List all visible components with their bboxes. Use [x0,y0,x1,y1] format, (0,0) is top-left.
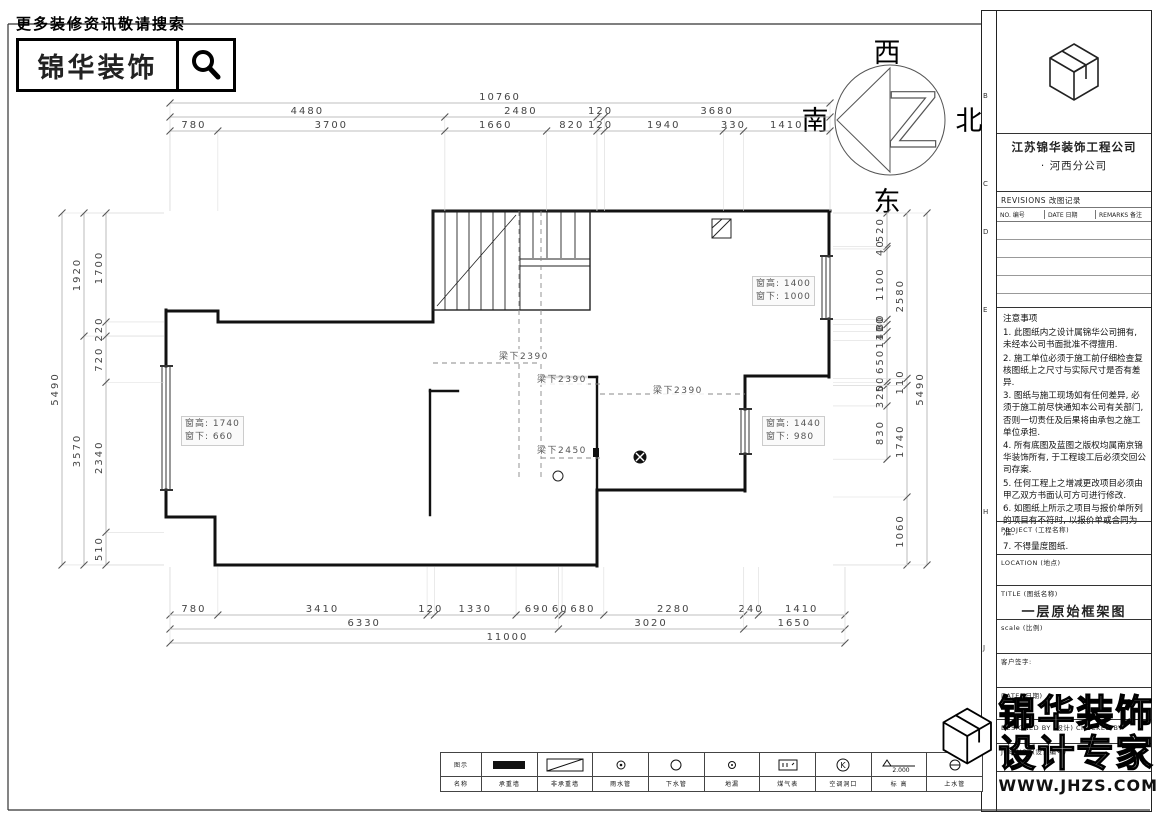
window-label: 窗高: 1740 窗下: 660 [181,416,244,446]
zone-letter: B [983,92,988,100]
dimension-label: 1740 [895,425,906,458]
dimension-label: 3020 [634,618,667,629]
dimension-label: 2580 [895,279,906,312]
window-height: 窗高: 1740 [185,418,240,431]
dimension-label: 140 [875,324,886,349]
dimension-label: 1100 [875,267,886,300]
dimension-label: 4480 [291,106,324,117]
zone-letter: H [983,508,988,516]
staircase [433,211,590,310]
dimension-label: 2280 [657,604,690,615]
dimension-label: 220 [94,316,105,341]
beam-dashed-lines [433,211,745,477]
beam-label: 梁下2390 [536,372,588,385]
promo-tagline: 更多装修资讯敬请搜索 [16,13,186,34]
brand-logo-box: 锦华装饰 [16,38,236,92]
dimension-label: 2340 [94,441,105,474]
dimension-label: 5490 [50,372,61,405]
zone-letter: J [983,644,985,652]
dimension-label: 60 [552,604,569,615]
dimension-label: 780 [181,120,206,131]
drawing-sheet: Z 西 北 南 东 [0,0,1158,818]
dimension-label: 720 [94,347,105,372]
dimension-label: 820 [559,120,584,131]
dimension-chains: 1076044802480120368078037001660820120194… [50,92,931,647]
zone-letter: C [983,180,988,188]
dimension-label: 120 [588,120,613,131]
dimension-label: 10760 [479,92,521,103]
dimension-label: 3570 [72,434,83,467]
column-marker [593,448,599,457]
dimension-label: 330 [721,120,746,131]
dimension-label: 650 [875,349,886,374]
beam-label: 梁下2390 [498,349,550,362]
beam-label: 梁下2450 [536,443,588,456]
dimension-label: 5490 [915,372,926,405]
dimension-label: 690 [525,604,550,615]
compass-north-label: 北 [956,106,983,137]
dimension-label: 3410 [306,604,339,615]
dimension-label: 1330 [459,604,492,615]
dimension-label: 1940 [647,120,680,131]
dimension-label: 3680 [700,106,733,117]
sheet-border [8,24,1150,810]
dimension-label: 780 [181,604,206,615]
dimension-label: 1060 [895,514,906,547]
window-sill: 窗下: 1000 [756,291,811,304]
dimension-label: 510 [94,536,105,561]
dimension-label: 1410 [770,120,803,131]
window-height: 窗高: 1400 [756,278,811,291]
dimension-label: 240 [739,604,764,615]
windows [160,256,833,490]
duct-symbol [712,219,731,238]
dimension-label: 830 [875,420,886,445]
pipe-symbol [553,471,563,481]
zone-letter: D [983,228,988,236]
dimension-label: 2480 [504,106,537,117]
window-label: 窗高: 1400 窗下: 1000 [752,276,815,306]
compass-west-label: 西 [874,38,901,69]
beam-label: 梁下2390 [652,383,704,396]
dimension-label: 520 [875,217,886,242]
dimension-label: 680 [570,604,595,615]
dimension-label: 120 [418,604,443,615]
dimension-label: 1660 [479,120,512,131]
dimension-label: 1700 [94,251,105,284]
window-sill: 窗下: 980 [766,431,821,444]
exterior-walls [166,211,830,566]
dimension-label: 120 [588,106,613,117]
compass-z-glyph: Z [887,76,939,165]
dimension-label: 40 [875,239,886,256]
dimension-label: 110 [895,369,906,394]
dimension-label: 1410 [785,604,818,615]
compass-south-label: 南 [802,106,829,137]
dimension-label: 320 [875,383,886,408]
search-icon [176,41,233,89]
window-height: 窗高: 1440 [766,418,821,431]
dimension-label: 11000 [487,632,529,643]
dimension-label: 3700 [315,120,348,131]
window-sill: 窗下: 660 [185,431,240,444]
dimension-label: 1920 [72,258,83,291]
zone-strip: B C D E H J [983,0,995,818]
north-compass: Z [835,65,945,175]
zone-letter: E [983,306,987,314]
window-label: 窗高: 1440 窗下: 980 [762,416,825,446]
brand-logo-text: 锦华装饰 [19,41,176,89]
dimension-label: 1650 [778,618,811,629]
dimension-label: 6330 [347,618,380,629]
